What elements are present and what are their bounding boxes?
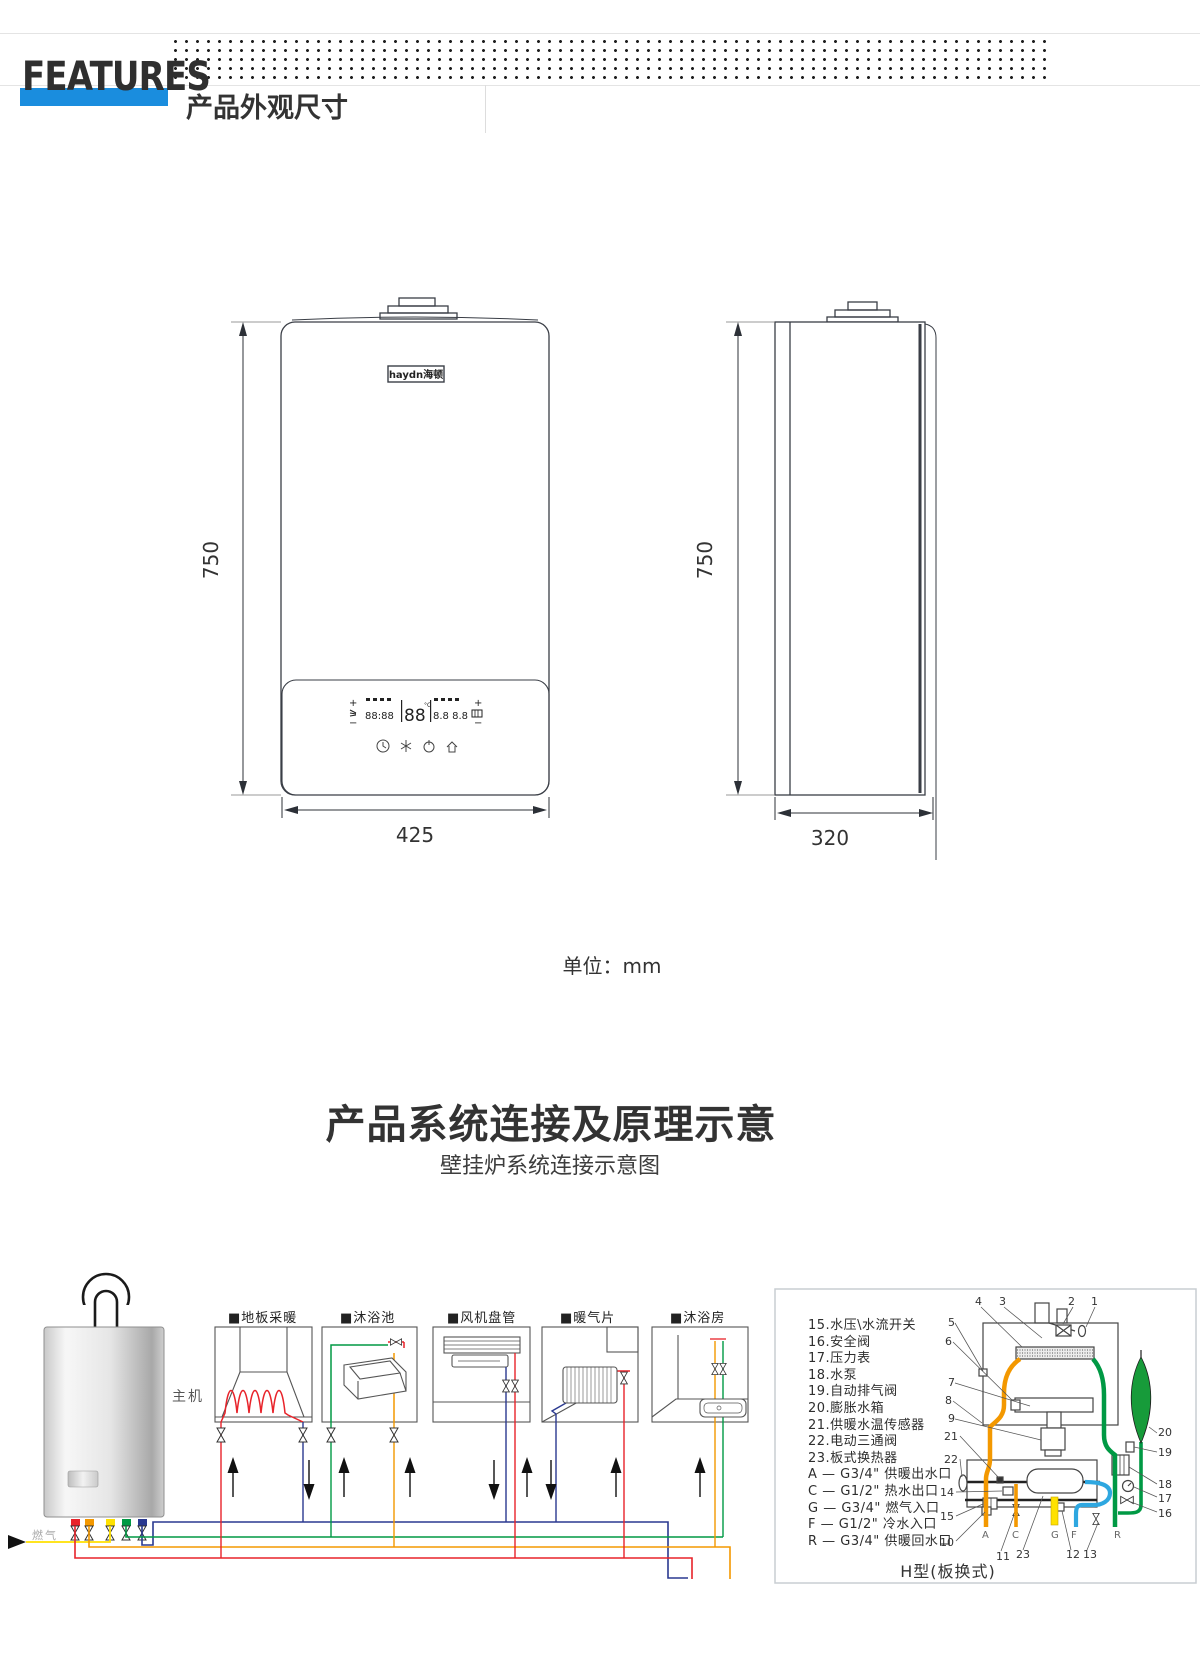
svg-text:+: + — [474, 698, 482, 709]
diagram-label: G — [1051, 1530, 1059, 1541]
gas-arrow-icon — [8, 1535, 26, 1549]
diagram-label: 16 — [1158, 1507, 1172, 1520]
main-unit-label: 主机 — [172, 1389, 204, 1405]
parts-list-item: A — G3/4" 供暖出水口 — [808, 1467, 952, 1484]
system-connection-diagram: 主机 燃气 — [0, 1195, 1200, 1675]
room-floor-heating — [215, 1327, 312, 1422]
dotted-pattern-decoration — [170, 37, 1046, 79]
boiler-side-view — [775, 302, 936, 860]
divider-top — [0, 33, 1200, 34]
side-height-label: 750 — [693, 541, 717, 579]
section2-subtitle: 壁挂炉系统连接示意图 — [0, 1148, 1100, 1180]
diagram-label: 1 — [1091, 1295, 1098, 1308]
header-separator — [485, 85, 486, 133]
room-shower — [652, 1327, 748, 1422]
rooms: ■地板采暖 ■沐浴池 ■风机盘管 ■暖气片 ■沐浴房 — [215, 1310, 748, 1422]
room-label-floor-heating: ■地板采暖 — [228, 1311, 297, 1326]
front-width-label: 425 — [396, 823, 434, 847]
svg-text:8.8 8.8: 8.8 8.8 — [433, 711, 468, 722]
diagram-label: 4 — [975, 1295, 982, 1308]
parts-list-item: F — G1/2" 冷水入口 — [808, 1517, 952, 1534]
svg-text:−: − — [349, 718, 357, 729]
main-unit: 主机 — [44, 1274, 204, 1517]
product-detail-page: FEATURES 产品外观尺寸 haydn海顿 — [0, 0, 1200, 1675]
schematic-caption: H型(板换式) — [900, 1562, 996, 1581]
diagram-label: R — [1114, 1530, 1121, 1541]
diagram-label: C — [1012, 1530, 1019, 1541]
side-depth-label: 320 — [811, 826, 849, 850]
room-label-shower-room: ■沐浴房 — [670, 1310, 725, 1326]
parts-list-item: 21.供暖水温传感器 — [808, 1418, 952, 1435]
diagram-label: 23 — [1016, 1548, 1030, 1561]
svg-text:−: − — [474, 718, 482, 729]
diagram-label: 17 — [1158, 1492, 1172, 1505]
gas-label: 燃气 — [32, 1528, 58, 1542]
diagram-label: 19 — [1158, 1446, 1172, 1459]
diagram-label: A — [982, 1530, 989, 1541]
unit-note: 单位：mm — [0, 950, 1200, 979]
svg-text:88: 88 — [404, 706, 426, 726]
parts-list-item: 19.自动排气阀 — [808, 1384, 952, 1401]
diagram-label: 11 — [996, 1550, 1010, 1563]
room-label-radiator: ■暖气片 — [560, 1310, 615, 1326]
parts-list-item: 23.板式换热器 — [808, 1451, 952, 1468]
parts-list-item: 20.膨胀水箱 — [808, 1401, 952, 1418]
parts-list-item: 18.水泵 — [808, 1368, 952, 1385]
svg-text:+: + — [349, 698, 357, 709]
room-label-bath: ■沐浴池 — [340, 1311, 395, 1326]
parts-list-item: 16.安全阀 — [808, 1335, 952, 1352]
section2-title: 产品系统连接及原理示意 — [0, 1092, 1102, 1150]
diagram-label: F — [1071, 1530, 1077, 1541]
parts-list-item: 15.水压\水流开关 — [808, 1318, 952, 1335]
section1-title: 产品外观尺寸 — [186, 86, 348, 125]
parts-list-item: 22.电动三通阀 — [808, 1434, 952, 1451]
features-heading: FEATURES — [22, 57, 210, 97]
room-fan-coil — [433, 1327, 530, 1422]
diagram-label: 20 — [1158, 1426, 1172, 1439]
flow-arrows — [228, 1457, 706, 1500]
parts-list-item: 17.压力表 — [808, 1351, 952, 1368]
parts-list-item: C — G1/2" 热水出口 — [808, 1484, 952, 1501]
gas-inlet: 燃气 — [8, 1528, 58, 1549]
boiler-front-view: haydn海顿 + − 88:88 88 °C 8.8 8.8 + — [281, 298, 549, 795]
diagram-label: 18 — [1158, 1478, 1172, 1491]
diagram-label: 3 — [999, 1295, 1006, 1308]
parts-list-item: G — G3/4" 燃气入口 — [808, 1501, 952, 1518]
svg-text:88:88: 88:88 — [365, 711, 394, 722]
brand-logo: haydn海顿 — [389, 368, 443, 381]
room-bath — [322, 1327, 417, 1422]
parts-list: 15.水压\水流开关16.安全阀17.压力表18.水泵19.自动排气阀20.膨胀… — [808, 1318, 952, 1550]
front-height-label: 750 — [199, 541, 223, 579]
dimension-drawings: haydn海顿 + − 88:88 88 °C 8.8 8.8 + — [0, 260, 1200, 860]
room-label-fan-coil: ■风机盘管 — [447, 1310, 516, 1326]
diagram-label: 12 — [1066, 1548, 1080, 1561]
diagram-label: 13 — [1083, 1548, 1097, 1561]
diagram-label: 2 — [1068, 1295, 1075, 1308]
parts-list-item: R — G3/4" 供暖回水口 — [808, 1534, 952, 1551]
